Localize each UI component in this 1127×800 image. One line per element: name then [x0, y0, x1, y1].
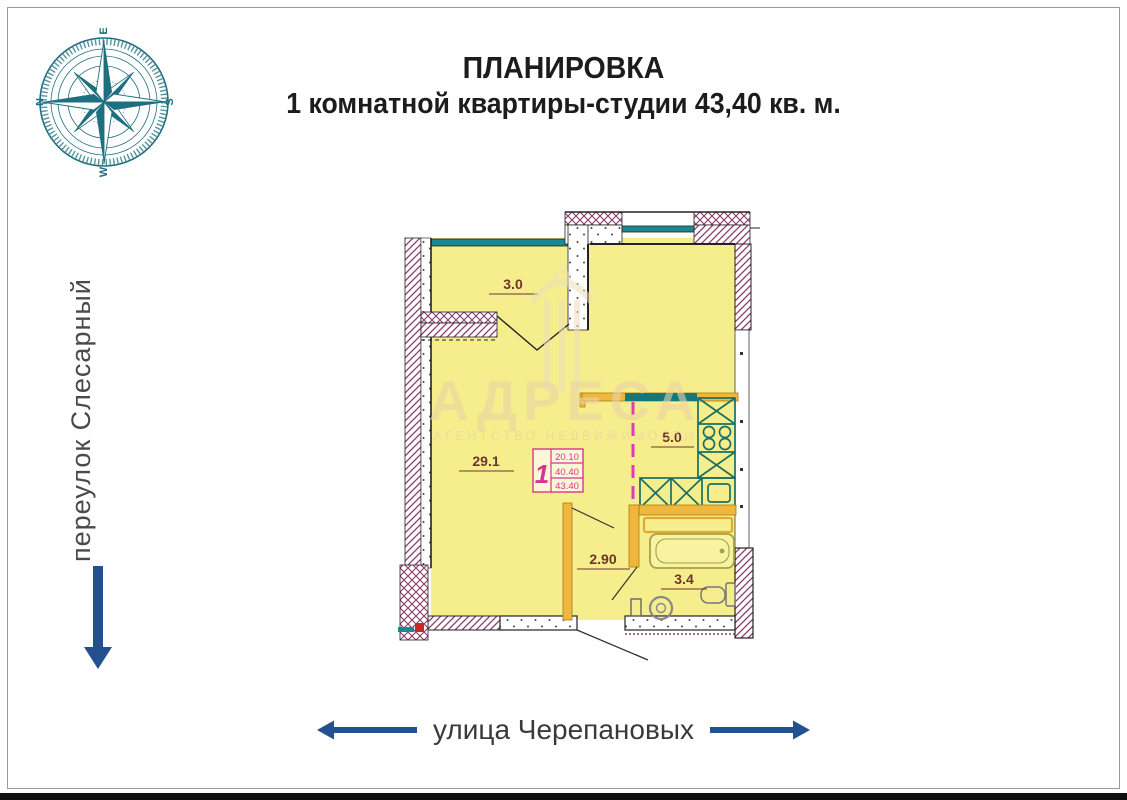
street-label-bottom-row: улица Черепановых: [0, 714, 1127, 746]
corner-red-mark: [415, 623, 424, 632]
stamp-value-2: 40.40: [555, 467, 579, 478]
street-label-bottom: улица Черепановых: [433, 714, 694, 746]
compass-letter-bottom: W: [98, 166, 110, 177]
main-window: [622, 226, 694, 232]
title-line-1: ПЛАНИРОВКА: [45, 52, 1082, 85]
bathroom-area-label: 3.4: [674, 571, 694, 587]
street-label-left: переулок Слесарный: [66, 290, 97, 562]
bathtub-icon: [650, 534, 734, 568]
right-wall: [735, 244, 753, 638]
corner-teal-mark: [398, 627, 414, 632]
flyer-page: { "title": { "line1": "ПЛАНИРОВКА", "lin…: [0, 0, 1127, 800]
down-arrow-shaft: [93, 566, 103, 648]
left-arrow-icon: [317, 719, 417, 741]
hallway-area-label: 2.90: [589, 551, 616, 567]
partition-teal-segment: [625, 393, 697, 401]
floor-plan: 3.0 29.1 5.0 2.90 3.4 1 20.10 40.40 43.4…: [395, 200, 775, 670]
kitchen-area-label: 5.0: [662, 429, 682, 445]
compass-letter-top: E: [98, 27, 110, 34]
balcony-area-label: 3.0: [503, 276, 523, 292]
bottom-edge-bar: [0, 793, 1127, 800]
right-arrow-icon: [710, 719, 810, 741]
stamp-room-count: 1: [535, 459, 549, 489]
stamp-value-1: 20.10: [555, 452, 579, 463]
title-line-2: 1 комнатной квартиры-студии 43,40 кв. м.: [45, 89, 1082, 121]
living-area-label: 29.1: [472, 453, 499, 469]
left-wall: [405, 238, 431, 568]
balcony-partition: [421, 312, 497, 340]
stamp-value-3: 43.40: [555, 481, 579, 492]
balcony-window: [431, 239, 568, 246]
down-arrow-icon: [84, 647, 112, 669]
apartment-stamp: 1 20.10 40.40 43.40: [533, 449, 583, 492]
page-title: ПЛАНИРОВКА 1 комнатной квартиры-студии 4…: [0, 52, 1127, 120]
balcony-divider-wall: [568, 225, 588, 330]
hall-partition: [563, 503, 572, 620]
